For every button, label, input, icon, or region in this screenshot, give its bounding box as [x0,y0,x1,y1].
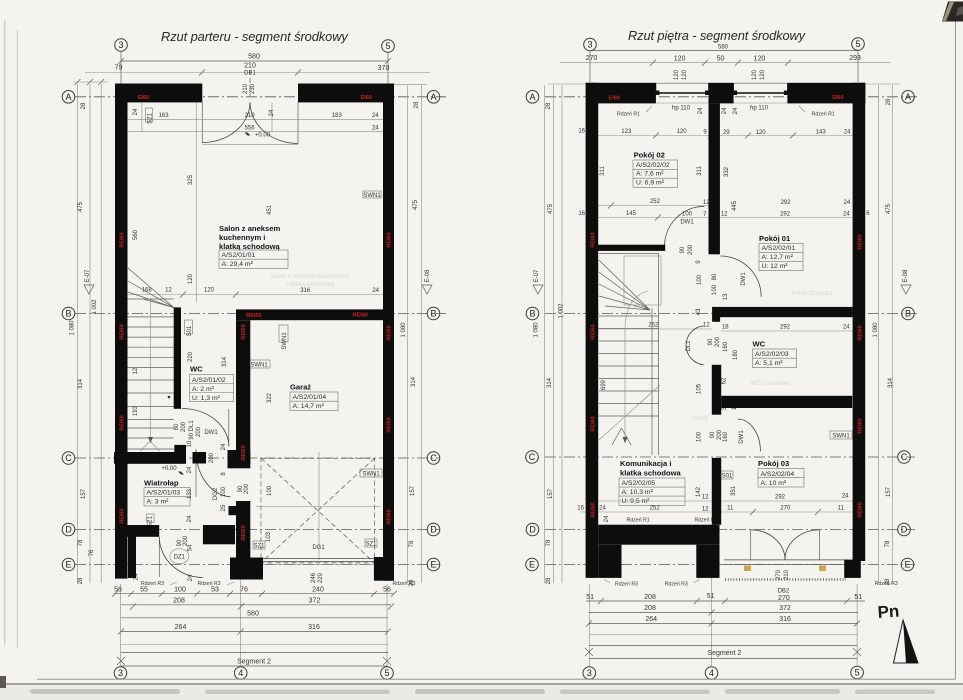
svg-text:100: 100 [712,284,718,295]
svg-text:580: 580 [247,610,259,617]
svg-text:208: 208 [644,594,656,601]
svg-text:100: 100 [221,486,227,497]
svg-text:24: 24 [843,324,850,330]
svg-text:E-08: E-08 [903,269,909,282]
svg-text:475: 475 [548,203,554,214]
svg-text:314: 314 [888,377,894,388]
svg-text:REI60: REI60 [120,415,126,430]
svg-text:560: 560 [133,229,139,240]
svg-text:445: 445 [732,200,738,211]
svg-text:E: E [529,560,535,570]
svg-text:120: 120 [754,56,766,63]
svg-text:105: 105 [697,383,703,394]
svg-text:120: 120 [677,129,688,135]
svg-text:133: 133 [187,488,193,499]
svg-text:51: 51 [854,594,862,601]
svg-text:Rdzeń R1: Rdzeń R1 [617,112,640,118]
svg-text:200: 200 [715,336,721,347]
svg-text:D: D [901,525,908,535]
svg-text:Salon z aneksem: Salon z aneksem [219,224,280,233]
svg-text:24: 24 [372,288,379,294]
svg-text:90: 90 [708,338,714,345]
svg-text:hp 110: hp 110 [750,106,769,112]
svg-text:200: 200 [209,452,215,463]
svg-text:322: 322 [267,392,273,403]
svg-text:120: 120 [752,69,758,80]
svg-text:B: B [529,309,535,319]
svg-text:580: 580 [718,45,729,51]
svg-text:24: 24 [269,109,275,116]
svg-text:+0.00: +0.00 [255,133,271,139]
svg-text:REI60: REI60 [387,417,393,432]
svg-text:WC: WC [753,340,766,349]
svg-text:SWN1: SWN1 [250,363,268,369]
svg-text:A: 10,3 m²: A: 10,3 m² [622,489,654,496]
svg-text:79: 79 [115,65,123,72]
svg-text:54: 54 [188,544,194,551]
svg-text:80: 80 [174,423,180,430]
svg-text:E-08: E-08 [425,269,431,282]
svg-text:220: 220 [318,572,324,583]
svg-text:475: 475 [413,199,419,210]
svg-text:120: 120 [760,69,766,80]
svg-text:210: 210 [243,83,249,94]
svg-text:A: 10 m²: A: 10 m² [761,480,787,487]
svg-text:208: 208 [173,597,185,604]
svg-text:E: E [65,560,71,570]
svg-text:120: 120 [204,288,215,294]
svg-text:200: 200 [196,426,202,437]
svg-text:24: 24 [187,515,193,522]
svg-text:90: 90 [680,246,686,253]
svg-text:120: 120 [682,69,688,80]
svg-text:C: C [529,452,536,462]
svg-text:90: 90 [710,431,716,438]
svg-text:24: 24 [372,113,379,119]
svg-text:157: 157 [548,488,554,499]
svg-text:28: 28 [414,101,420,108]
svg-text:24: 24 [372,125,379,131]
svg-text:12: 12 [703,323,710,329]
svg-text:1 080: 1 080 [534,322,540,338]
svg-text:A/S2/02/01: A/S2/02/01 [762,245,796,252]
svg-text:316: 316 [308,624,320,631]
svg-text:12: 12 [721,212,728,218]
svg-text:Rdzeń R3: Rdzeń R3 [392,581,415,587]
svg-text:78: 78 [885,540,891,547]
svg-text:A: 12,7 m²: A: 12,7 m² [762,254,794,261]
svg-text:145: 145 [626,211,637,217]
svg-text:372: 372 [779,605,791,612]
svg-text:Rdzeń R3: Rdzeń R3 [197,581,220,587]
svg-text:451: 451 [267,204,273,215]
svg-text:REI60: REI60 [241,445,247,460]
svg-text:S21: S21 [147,113,153,124]
svg-text:100: 100 [174,587,186,594]
svg-text:Salon z aneksem kuchennym: Salon z aneksem kuchennym [271,274,349,280]
svg-text:WC schodowa: WC schodowa [751,381,790,387]
svg-text:28: 28 [546,577,552,584]
svg-text:E-07: E-07 [534,269,540,282]
svg-text:270: 270 [586,55,598,62]
svg-text:DL1: DL1 [686,340,692,352]
svg-text:A/S2/01/04: A/S2/01/04 [293,394,327,401]
svg-text:1 002: 1 002 [559,303,565,319]
svg-text:5: 5 [385,41,390,51]
svg-text:5: 5 [855,668,860,678]
svg-text:DG1: DG1 [312,545,325,551]
svg-text:1 080: 1 080 [70,320,76,336]
svg-text:28: 28 [546,102,552,109]
svg-text:143: 143 [816,130,827,136]
svg-text:163: 163 [159,113,170,119]
svg-text:WC: WC [190,365,203,374]
svg-text:252: 252 [648,323,659,329]
svg-text:3: 3 [587,668,592,678]
svg-text:43: 43 [696,308,702,315]
svg-text:C: C [901,452,908,462]
svg-text:U: 1,3 m²: U: 1,3 m² [192,395,221,402]
svg-text:292: 292 [781,200,792,206]
svg-text:332: 332 [724,166,730,177]
svg-text:12: 12 [702,495,709,501]
svg-text:210: 210 [784,569,790,580]
svg-text:180: 180 [733,349,739,360]
svg-text:EI60: EI60 [361,95,372,101]
svg-text:Rdzeń R3: Rdzeń R3 [875,581,898,587]
svg-text:U: 9,5 m²: U: 9,5 m² [622,498,651,505]
svg-text:78: 78 [409,540,415,547]
svg-text:24: 24 [133,108,139,115]
svg-text:REI60: REI60 [387,232,393,247]
svg-text:REI60: REI60 [858,418,864,433]
svg-text:U: 6,9 m²: U: 6,9 m² [636,180,665,187]
svg-text:Rdzeń R1: Rdzeń R1 [812,112,835,118]
svg-text:DZ1: DZ1 [174,555,186,561]
svg-text:157: 157 [81,488,87,499]
svg-text:REI60: REI60 [591,324,597,339]
svg-text:292: 292 [780,324,791,330]
svg-text:Pokój 01 klatka: Pokój 01 klatka [792,291,833,297]
svg-text:29: 29 [723,130,730,136]
svg-text:REI60: REI60 [591,502,597,517]
svg-text:Rdzeń R3: Rdzeń R3 [141,581,164,587]
svg-text:699: 699 [601,379,607,390]
svg-text:Pokój 03: Pokój 03 [758,459,789,468]
svg-text:580: 580 [248,54,260,61]
svg-text:i klatką schodową: i klatką schodową [286,282,334,288]
svg-text:Pokój 02: Pokój 02 [634,151,665,160]
svg-text:556: 556 [245,125,256,131]
svg-text:REI60: REI60 [353,313,368,319]
svg-text:DB2: DB2 [778,588,790,594]
svg-text:S01: S01 [187,325,193,336]
svg-text:S01: S01 [722,474,733,480]
svg-text:62: 62 [722,377,728,384]
svg-text:DW1: DW1 [739,430,745,444]
svg-text:REI60: REI60 [591,416,597,431]
svg-text:28: 28 [81,102,87,109]
svg-text:193: 193 [133,405,139,416]
svg-text:A/S2/02/04: A/S2/02/04 [761,471,795,478]
svg-text:SWN1: SWN1 [363,193,381,199]
svg-text:A: 5,1 m²: A: 5,1 m² [755,360,783,367]
svg-text:B: B [430,309,436,319]
svg-text:REI60: REI60 [120,508,126,523]
svg-text:123: 123 [621,129,632,135]
svg-text:A: A [65,92,71,102]
svg-text:12: 12 [165,288,172,294]
svg-text:SWN1: SWN1 [832,434,850,440]
svg-text:311: 311 [600,166,606,176]
svg-text:51: 51 [707,593,715,600]
svg-text:REI60: REI60 [241,525,247,540]
svg-text:3: 3 [118,40,123,50]
svg-text:351: 351 [731,485,737,496]
svg-text:200: 200 [244,483,250,494]
svg-text:314: 314 [411,376,417,387]
svg-text:E: E [904,560,910,570]
svg-text:3: 3 [587,40,592,50]
svg-text:24: 24 [843,212,850,218]
svg-text:142: 142 [696,486,702,497]
svg-text:5: 5 [384,668,389,678]
svg-text:100: 100 [267,485,273,496]
svg-text:18: 18 [722,324,729,330]
svg-text:B: B [905,309,911,319]
svg-text:1 080: 1 080 [401,322,407,338]
svg-text:REI60: REI60 [246,313,261,319]
svg-text:A: 2 m²: A: 2 m² [192,386,215,393]
svg-text:53: 53 [211,587,219,594]
svg-text:EI60: EI60 [609,96,620,102]
svg-text:+0.00: +0.00 [161,466,177,472]
svg-text:24: 24 [187,466,193,473]
svg-text:264: 264 [175,624,187,631]
svg-text:56: 56 [114,587,122,594]
svg-text:51: 51 [586,594,594,601]
svg-text:REI60: REI60 [387,509,393,524]
svg-text:314: 314 [78,378,84,389]
svg-text:kuchennym i: kuchennym i [219,233,265,242]
svg-text:A/S2/02/05: A/S2/02/05 [622,480,656,487]
svg-text:220: 220 [188,351,194,362]
svg-text:120: 120 [674,56,686,63]
svg-text:U: 12 m²: U: 12 m² [762,263,789,270]
svg-text:Rdzeń R3: Rdzeń R3 [665,582,688,588]
svg-text:A/S2/01/03: A/S2/01/03 [147,489,181,496]
svg-text:293: 293 [849,55,861,62]
svg-text:REI60: REI60 [858,325,864,340]
svg-text:A/S2/01/02: A/S2/01/02 [192,377,226,384]
svg-text:240: 240 [312,587,324,594]
svg-text:292: 292 [780,212,791,218]
svg-text:314: 314 [222,356,228,367]
svg-text:372: 372 [309,597,321,604]
svg-text:16: 16 [578,211,585,217]
svg-text:24: 24 [842,494,849,500]
svg-text:157: 157 [886,486,892,497]
svg-text:REI60: REI60 [120,324,126,339]
svg-text:28: 28 [886,98,892,105]
svg-text:A: 7,6 m²: A: 7,6 m² [636,171,664,178]
svg-text:Garaż: Garaż [290,383,311,392]
svg-text:klatka schodowa: klatka schodowa [620,469,682,478]
svg-text:A: A [430,92,436,102]
svg-text:55: 55 [140,587,148,594]
svg-text:E-07: E-07 [85,269,91,282]
svg-text:C: C [430,453,437,463]
svg-text:10: 10 [187,440,193,447]
svg-text:A/S2/02/03: A/S2/02/03 [755,351,789,358]
svg-text:A: 29,4 m²: A: 29,4 m² [222,261,254,268]
svg-text:SZ1: SZ1 [365,542,377,548]
svg-text:16: 16 [577,506,584,512]
svg-text:28: 28 [78,577,84,584]
svg-text:A/S2/01/01: A/S2/01/01 [222,252,256,259]
svg-text:25: 25 [221,504,227,511]
svg-text:270: 270 [780,506,791,512]
svg-text:1 002: 1 002 [92,299,98,315]
svg-text:Pokój 01: Pokój 01 [759,234,791,243]
svg-text:REI60: REI60 [591,232,597,247]
svg-text:370: 370 [378,65,390,72]
svg-text:Segment 2: Segment 2 [237,659,271,666]
svg-text:264: 264 [645,616,657,623]
svg-text:11: 11 [838,506,845,512]
svg-text:24: 24 [221,443,227,450]
svg-text:REI60: REI60 [858,502,864,517]
svg-text:16: 16 [578,129,585,135]
svg-text:Rzut piętra - segment środkowy: Rzut piętra - segment środkowy [628,28,807,43]
svg-text:DW1: DW1 [741,272,747,286]
svg-text:24: 24 [722,107,728,114]
svg-text:A/S2/02/02: A/S2/02/02 [636,162,670,169]
svg-text:100: 100 [697,274,703,285]
svg-text:REI60: REI60 [387,325,393,340]
svg-text:A: 14,7 m²: A: 14,7 m² [293,403,325,410]
svg-text:160: 160 [723,431,729,442]
svg-text:325: 325 [188,174,194,185]
svg-text:C: C [65,453,72,463]
svg-text:50: 50 [717,56,725,63]
svg-text:3: 3 [118,668,123,678]
svg-text:200: 200 [183,535,189,546]
svg-text:24: 24 [844,130,851,136]
svg-text:Wiatrołap: Wiatrołap [144,479,179,488]
svg-text:Segment 2: Segment 2 [707,650,741,657]
svg-text:160: 160 [723,341,729,352]
svg-text:Pokój: Pokój [692,416,707,422]
svg-text:DG2: DG2 [213,487,219,500]
svg-text:REI60: REI60 [858,234,864,249]
svg-text:316: 316 [300,288,311,294]
svg-text:246: 246 [311,572,317,583]
svg-text:200: 200 [181,421,187,432]
svg-text:Komunikacja i: Komunikacja i [620,459,671,468]
svg-text:Rzut parteru - segment środkow: Rzut parteru - segment środkowy [161,29,349,44]
svg-text:80: 80 [712,273,718,280]
svg-text:B: B [65,309,71,319]
svg-text:76: 76 [240,587,248,594]
svg-text:EI60: EI60 [832,95,843,101]
svg-text:D: D [65,525,72,535]
svg-text:A: 3 m²: A: 3 m² [147,498,170,505]
svg-text:120: 120 [756,130,767,136]
svg-text:4: 4 [238,668,243,678]
svg-text:DW1: DW1 [680,220,694,226]
svg-text:24: 24 [733,107,739,114]
svg-text:24: 24 [698,107,704,114]
svg-text:hp 110: hp 110 [672,106,691,112]
svg-text:5: 5 [855,39,860,49]
svg-text:208: 208 [644,605,656,612]
svg-text:Pn: Pn [877,602,900,622]
svg-text:E: E [430,560,436,570]
svg-text:157: 157 [410,485,416,496]
svg-text:1 080: 1 080 [873,322,879,338]
svg-text:475: 475 [886,203,892,214]
svg-text:168: 168 [142,288,153,294]
svg-text:SWN1: SWN1 [362,472,380,478]
svg-text:314: 314 [547,377,553,388]
svg-text:A: A [905,92,911,102]
svg-text:24: 24 [844,200,851,206]
svg-text:252: 252 [650,199,661,205]
svg-text:EI60: EI60 [138,95,149,101]
svg-text:56: 56 [383,587,391,594]
svg-text:120: 120 [188,273,194,284]
svg-text:78: 78 [546,539,552,546]
svg-text:120: 120 [674,69,680,80]
svg-text:270: 270 [776,569,782,580]
svg-text:311: 311 [697,166,703,176]
svg-text:12: 12 [702,507,709,513]
svg-text:76: 76 [89,549,95,556]
svg-text:90 DL1: 90 DL1 [189,420,195,440]
svg-text:A: A [529,92,535,102]
svg-text:230: 230 [250,83,256,94]
svg-text:13: 13 [723,293,729,300]
svg-text:475: 475 [78,201,84,212]
svg-text:D: D [430,525,437,535]
svg-text:DW1: DW1 [204,430,218,436]
svg-text:270: 270 [778,595,790,602]
svg-text:Rdzeń R3: Rdzeń R3 [615,582,638,588]
svg-text:78: 78 [78,539,84,546]
svg-text:183: 183 [332,113,343,119]
svg-text:24: 24 [604,515,610,522]
svg-text:100: 100 [697,431,703,442]
svg-text:316: 316 [779,616,791,623]
svg-text:SWN1: SWN1 [282,332,288,350]
svg-text:klatką schodową: klatką schodową [219,242,281,251]
svg-text:D: D [529,525,536,535]
svg-text:12: 12 [133,367,139,374]
svg-text:103: 103 [266,531,272,542]
svg-text:4: 4 [709,668,714,678]
svg-text:REI60: REI60 [241,324,247,339]
svg-text:Rdzeń R1: Rdzeń R1 [627,518,650,524]
svg-text:252: 252 [650,506,661,512]
svg-text:200: 200 [688,244,694,255]
svg-text:292: 292 [775,495,786,501]
svg-text:11: 11 [727,506,734,512]
svg-text:SZ1: SZ1 [253,544,265,550]
svg-text:24: 24 [599,506,606,512]
svg-text:24: 24 [188,574,194,581]
svg-text:REI60: REI60 [120,232,126,247]
